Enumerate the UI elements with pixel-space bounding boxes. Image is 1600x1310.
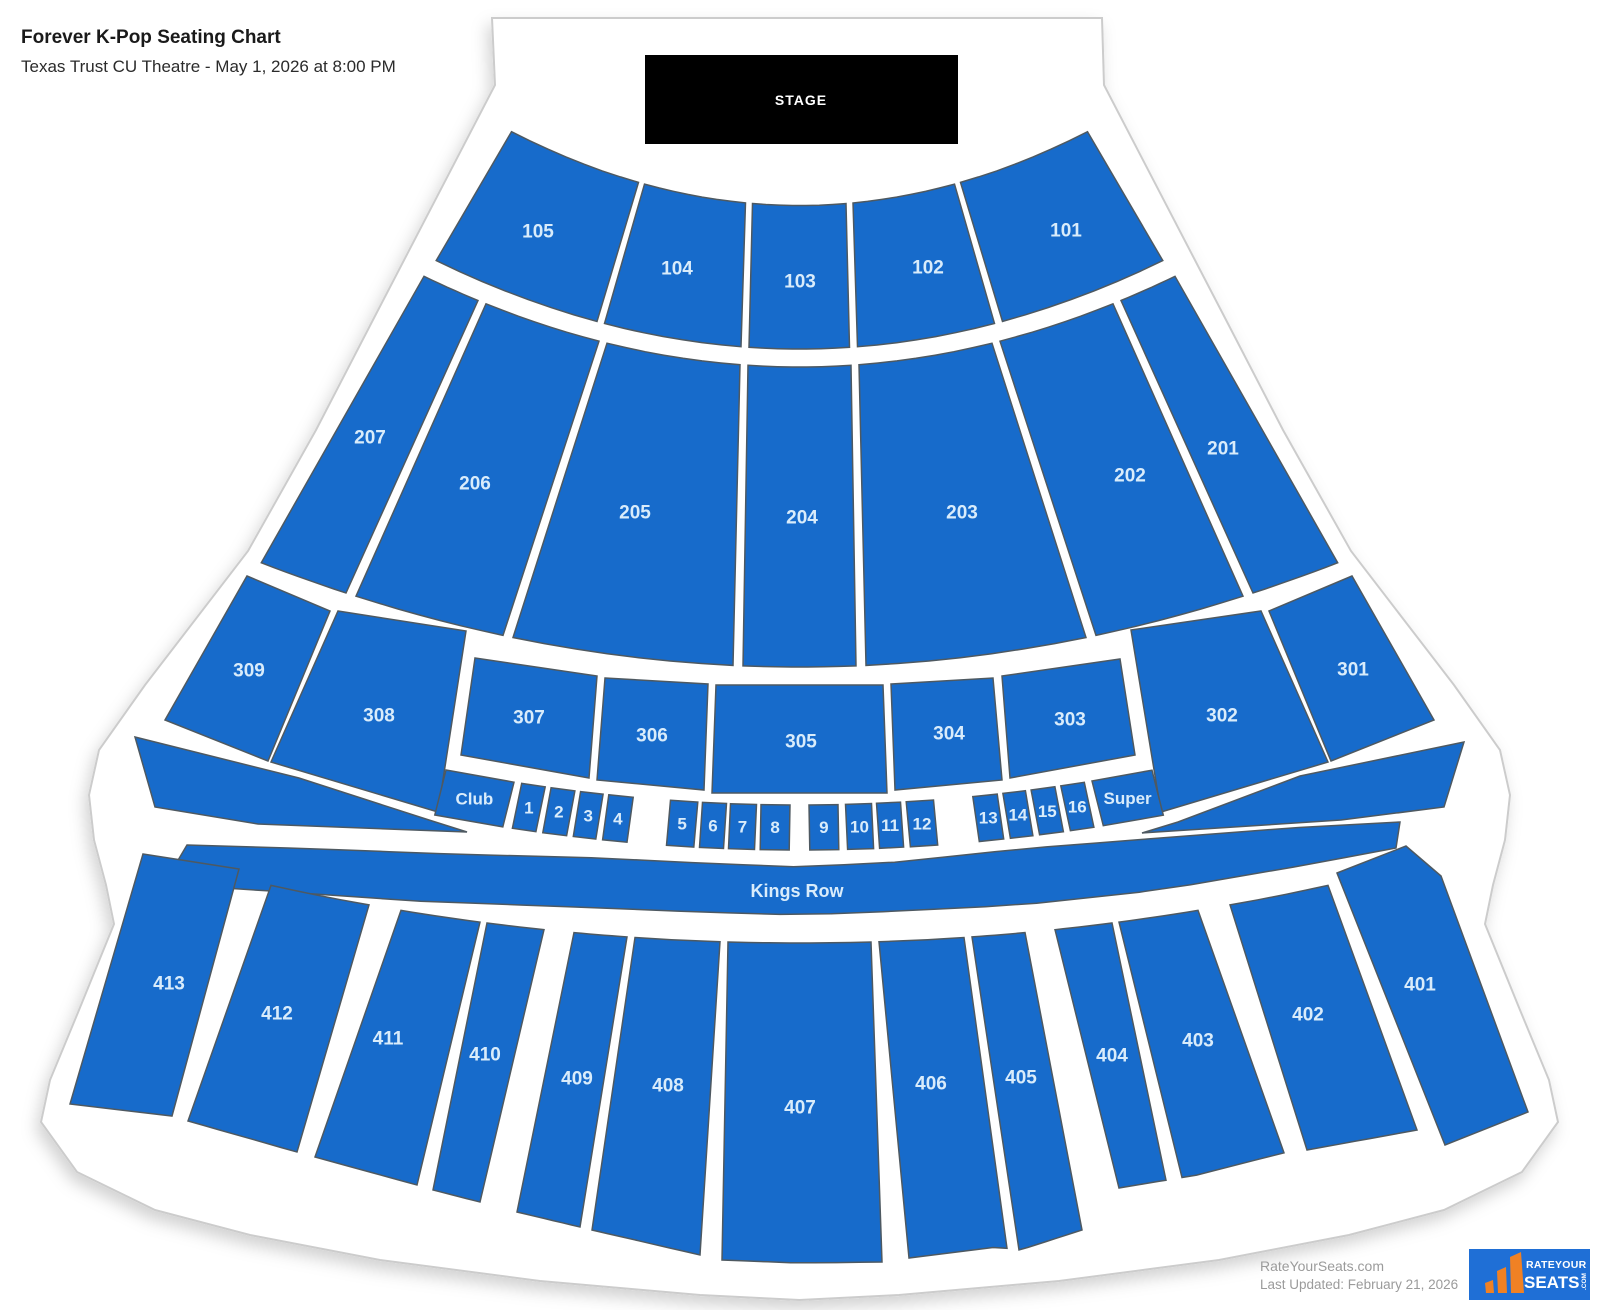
svg-text:207: 207 bbox=[354, 428, 386, 449]
svg-text:RATEYOUR: RATEYOUR bbox=[1526, 1259, 1587, 1271]
svg-text:STAGE: STAGE bbox=[775, 92, 827, 108]
svg-text:301: 301 bbox=[1337, 660, 1369, 681]
svg-text:402: 402 bbox=[1292, 1005, 1324, 1026]
svg-text:410: 410 bbox=[469, 1045, 501, 1066]
svg-text:305: 305 bbox=[785, 732, 817, 753]
svg-text:5: 5 bbox=[677, 815, 686, 834]
svg-text:413: 413 bbox=[153, 974, 185, 995]
svg-text:409: 409 bbox=[561, 1069, 593, 1090]
svg-text:6: 6 bbox=[708, 816, 717, 835]
svg-text:13: 13 bbox=[979, 809, 998, 828]
svg-text:201: 201 bbox=[1207, 439, 1239, 460]
svg-text:SEATS: SEATS bbox=[1524, 1273, 1579, 1292]
svg-text:Super: Super bbox=[1104, 789, 1153, 808]
svg-text:303: 303 bbox=[1054, 710, 1086, 731]
svg-text:407: 407 bbox=[784, 1098, 816, 1119]
svg-text:10: 10 bbox=[850, 817, 869, 836]
svg-text:306: 306 bbox=[636, 726, 668, 747]
svg-text:205: 205 bbox=[619, 503, 651, 524]
svg-text:309: 309 bbox=[233, 661, 265, 682]
svg-text:412: 412 bbox=[261, 1004, 293, 1025]
svg-text:408: 408 bbox=[652, 1076, 684, 1097]
svg-text:203: 203 bbox=[946, 503, 978, 524]
svg-text:.COM: .COM bbox=[1581, 1273, 1588, 1290]
svg-text:102: 102 bbox=[912, 258, 944, 279]
svg-text:405: 405 bbox=[1005, 1068, 1037, 1089]
svg-text:3: 3 bbox=[583, 806, 592, 825]
svg-text:202: 202 bbox=[1114, 466, 1146, 487]
svg-text:8: 8 bbox=[770, 818, 779, 837]
svg-text:304: 304 bbox=[933, 724, 965, 745]
svg-text:Club: Club bbox=[456, 790, 494, 809]
svg-text:401: 401 bbox=[1404, 975, 1436, 996]
svg-text:406: 406 bbox=[915, 1074, 947, 1095]
svg-text:11: 11 bbox=[881, 816, 899, 835]
svg-text:15: 15 bbox=[1038, 802, 1057, 821]
svg-text:Last Updated: February 21, 202: Last Updated: February 21, 2026 bbox=[1260, 1277, 1458, 1292]
svg-text:16: 16 bbox=[1068, 798, 1087, 817]
svg-text:206: 206 bbox=[459, 474, 491, 495]
svg-text:7: 7 bbox=[738, 818, 747, 837]
svg-text:101: 101 bbox=[1050, 221, 1082, 242]
svg-text:Kings Row: Kings Row bbox=[751, 881, 845, 901]
svg-text:302: 302 bbox=[1206, 706, 1238, 727]
svg-text:104: 104 bbox=[661, 259, 693, 280]
svg-text:1: 1 bbox=[524, 799, 533, 818]
svg-text:RateYourSeats.com: RateYourSeats.com bbox=[1260, 1258, 1384, 1274]
svg-text:105: 105 bbox=[522, 222, 554, 243]
svg-text:12: 12 bbox=[913, 814, 932, 833]
svg-text:14: 14 bbox=[1008, 806, 1027, 825]
svg-text:9: 9 bbox=[819, 818, 828, 837]
svg-text:404: 404 bbox=[1096, 1046, 1128, 1067]
svg-text:103: 103 bbox=[784, 272, 816, 293]
svg-text:403: 403 bbox=[1182, 1031, 1214, 1052]
svg-text:4: 4 bbox=[613, 810, 623, 829]
svg-text:411: 411 bbox=[373, 1029, 404, 1050]
svg-text:308: 308 bbox=[363, 706, 395, 727]
svg-text:204: 204 bbox=[786, 508, 818, 529]
svg-text:2: 2 bbox=[554, 803, 563, 822]
svg-text:307: 307 bbox=[513, 708, 545, 729]
